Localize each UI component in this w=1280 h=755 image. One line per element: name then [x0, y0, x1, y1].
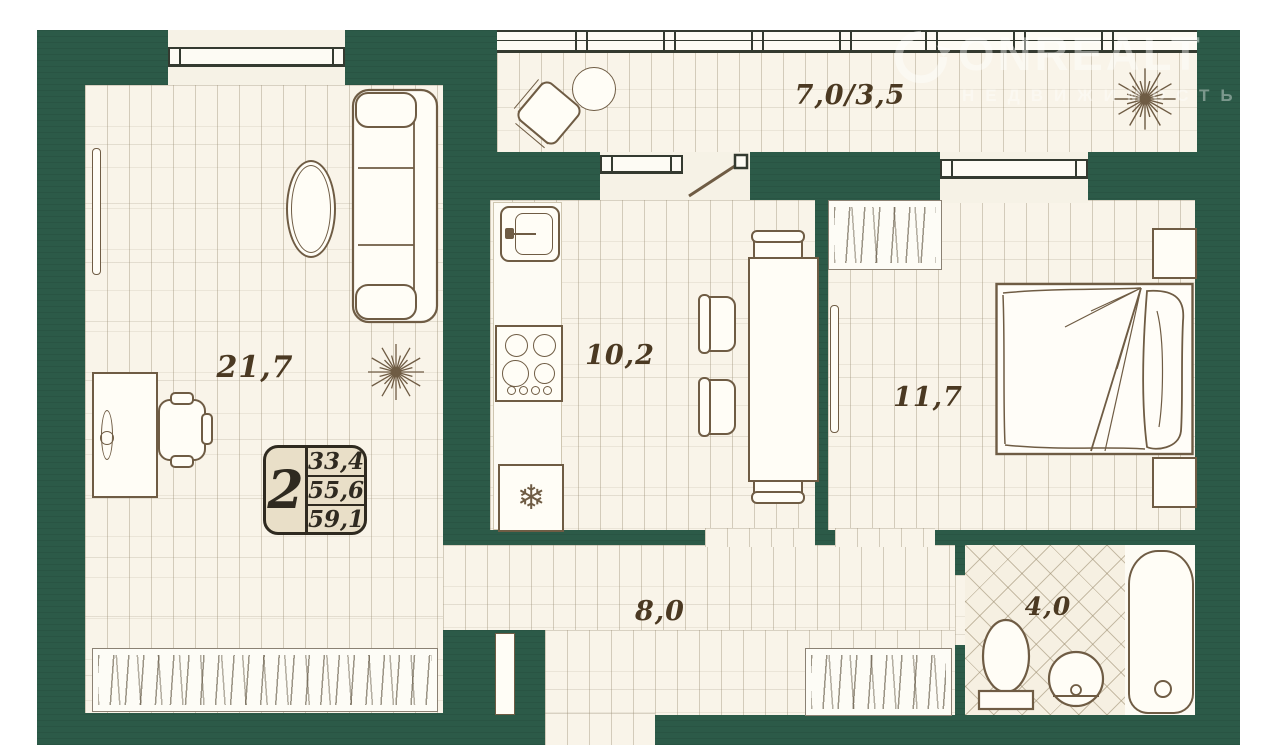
bedroom-door-opening: [835, 528, 935, 547]
wall-mirror-icon: [830, 305, 839, 433]
bathroom-area-label: 4,0: [998, 592, 1098, 621]
window-post-icon: [670, 157, 683, 171]
watermark: ONREALT НЕДВИЖИМОСТЬ: [892, 24, 1240, 116]
balcony-door-opening: [683, 152, 750, 200]
window-post-icon: [168, 49, 181, 64]
unit-info-badge: 2 33,4 55,6 59,1: [263, 445, 367, 535]
unit-living-area: 33,4: [308, 448, 364, 477]
bedroom-area-label: 11,7: [868, 382, 988, 413]
kitchen-area-label: 10,2: [565, 340, 675, 371]
glazing-mullion-icon: [839, 32, 852, 50]
desk-lamp-icon: [101, 410, 113, 460]
bedroom-window: [940, 159, 1088, 179]
living-room-area-label: 21,7: [195, 350, 315, 385]
kitchen-window-bay: [600, 152, 683, 200]
bath-sink-icon: [1046, 648, 1106, 712]
nightstand-icon: [1152, 228, 1197, 279]
watermark-subtitle: НЕДВИЖИМОСТЬ: [962, 86, 1244, 106]
glazing-mullion-icon: [575, 32, 588, 50]
snowflake-icon: ❄: [517, 478, 546, 518]
window-post-icon: [600, 157, 613, 171]
hallway-area-label: 8,0: [605, 596, 715, 627]
glazing-mullion-icon: [663, 32, 676, 50]
dining-chair-icon: [700, 296, 736, 352]
stove-icon: [495, 325, 563, 402]
balcony-table-icon: [572, 67, 616, 111]
floor-plan: 21,7 2 33,4 55,6 59,1 7,0/3,5 ❄ 10,2: [0, 0, 1280, 755]
living-room-window-bay: [168, 30, 345, 85]
coffee-table-icon: [286, 160, 336, 258]
bedroom-wardrobe-icon: [828, 200, 942, 270]
hall-door-leaf-icon: [495, 633, 515, 715]
toilet-icon: [975, 616, 1039, 714]
wall-mirror-icon: [92, 148, 101, 275]
office-chair-icon: [158, 399, 206, 461]
nightstand-icon: [1152, 457, 1197, 508]
kitchen-door-opening: [705, 528, 815, 547]
bathtub-drain-icon: [1154, 680, 1172, 698]
unit-area: 55,6: [308, 477, 364, 506]
dining-table-icon: [748, 257, 819, 482]
hall-wardrobe-icon: [805, 648, 952, 716]
bedroom-window-bay: [940, 152, 1088, 203]
plant-icon: [364, 340, 428, 404]
fridge-icon: ❄: [498, 464, 564, 532]
door-swing-icon: [683, 152, 750, 200]
bathtub-icon: [1128, 550, 1194, 714]
onrealt-logo-icon: [892, 28, 950, 86]
living-room-wardrobe-icon: [92, 648, 438, 712]
entrance-opening: [545, 713, 655, 745]
glazing-mullion-icon: [751, 32, 764, 50]
sofa-icon: [350, 87, 440, 325]
window-post-icon: [1075, 161, 1088, 176]
living-room-window: [168, 47, 345, 67]
window-post-icon: [940, 161, 953, 176]
unit-total-area: 59,1: [308, 506, 364, 533]
kitchen-sink-icon: [500, 206, 560, 262]
bed-icon: [995, 281, 1195, 457]
window-post-icon: [332, 49, 345, 64]
watermark-brand: ONREALT: [958, 26, 1203, 81]
dining-chair-icon: [700, 379, 736, 435]
kitchen-window: [600, 155, 683, 174]
desk-icon: [92, 372, 158, 498]
unit-rooms-count: 2: [266, 448, 308, 532]
